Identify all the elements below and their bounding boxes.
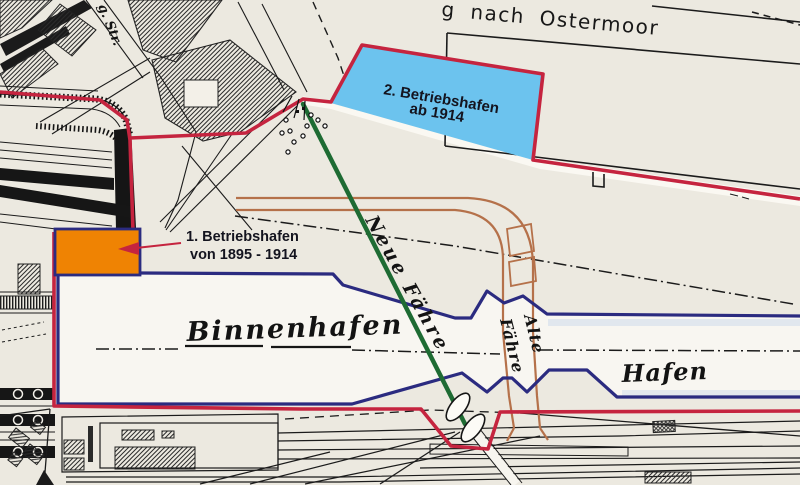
harbor-label: Hafen [620,356,708,388]
first-port-label-line1: 1. Betriebshafen [186,229,299,245]
historical-map: g nach Ostermoor g. Str. Binnenhafen Haf… [0,0,800,485]
water-tint-2 [622,390,800,396]
map-canvas: g nach Ostermoor g. Str. Binnenhafen Haf… [0,0,800,485]
first-port-area [55,229,140,275]
first-port-label-line2: von 1895 - 1914 [190,247,297,263]
water-tint [548,319,800,326]
